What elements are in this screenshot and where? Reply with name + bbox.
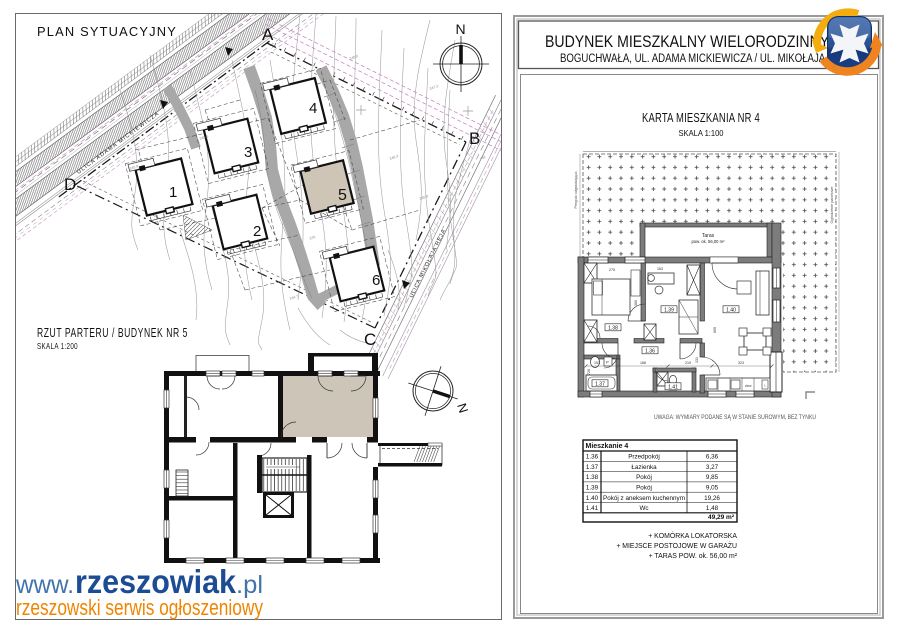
svg-text:Pokój: Pokój [636, 474, 652, 481]
svg-text:BOGUCHWAŁA, UL. ADAMA MICKIEWI: BOGUCHWAŁA, UL. ADAMA MICKIEWICZA / UL. … [560, 53, 852, 65]
svg-text:1.36: 1.36 [586, 454, 599, 461]
svg-text:Przedpokój: Przedpokój [628, 454, 660, 461]
svg-text:D: D [64, 175, 76, 194]
svg-text:1.37: 1.37 [586, 464, 599, 471]
svg-text:1.36: 1.36 [645, 349, 655, 355]
svg-text:6: 6 [372, 272, 380, 289]
svg-text:360: 360 [634, 300, 638, 306]
svg-text:+ TARAS POW. ok. 56,00 m²: + TARAS POW. ok. 56,00 m² [649, 553, 738, 560]
svg-text:ULICA MIKOŁAJA REJA: ULICA MIKOŁAJA REJA [409, 228, 448, 299]
svg-text:rzeszowski serwis ogłoszeniowy: rzeszowski serwis ogłoszeniowy [16, 595, 263, 620]
svg-text:B: B [469, 129, 480, 148]
svg-text:P: P [606, 360, 609, 365]
svg-text:726: 726 [587, 369, 591, 375]
svg-text:Mieszkanie 4: Mieszkanie 4 [586, 443, 629, 450]
svg-text:219: 219 [685, 361, 691, 365]
svg-text:N: N [456, 21, 466, 37]
svg-text:1.41: 1.41 [586, 505, 599, 512]
svg-text:1.37: 1.37 [595, 382, 605, 388]
svg-text:168: 168 [640, 361, 646, 365]
svg-text:PLAN SYTUACYJNY: PLAN SYTUACYJNY [37, 24, 177, 39]
svg-text:275: 275 [609, 268, 615, 272]
svg-text:5: 5 [338, 187, 347, 204]
svg-text:KARTA MIESZKANIA NR 4: KARTA MIESZKANIA NR 4 [642, 110, 760, 125]
svg-text:+ KOMÓRKA LOKATORSKA: + KOMÓRKA LOKATORSKA [648, 531, 737, 540]
svg-text:1,48: 1,48 [706, 505, 719, 512]
svg-text:+48: +48 [479, 155, 486, 161]
svg-text:1.40: 1.40 [726, 308, 736, 314]
svg-text:Pokój z aneksem kuchennym: Pokój z aneksem kuchennym [603, 495, 685, 502]
svg-text:1.39: 1.39 [664, 308, 674, 314]
svg-text:Wc: Wc [639, 505, 648, 512]
svg-text:153: 153 [594, 361, 600, 365]
svg-text:SKALA 1:100: SKALA 1:100 [679, 128, 724, 138]
svg-text:246.3: 246.3 [389, 154, 399, 161]
svg-text:1.41: 1.41 [668, 385, 678, 391]
svg-text:+ MIEJSCE POSTOJOWE W GARAŻU: + MIEJSCE POSTOJOWE W GARAŻU [616, 541, 737, 550]
svg-text:3,27: 3,27 [706, 464, 719, 471]
svg-text:245.8: 245.8 [419, 194, 429, 201]
svg-text:pow. ok. 56,00 m²: pow. ok. 56,00 m² [691, 239, 725, 244]
svg-text:378: 378 [309, 235, 316, 241]
svg-text:9,85: 9,85 [706, 474, 719, 481]
svg-text:SKALA 1:200: SKALA 1:200 [37, 341, 78, 351]
svg-text:UWAGA: WYMIARY PODANE SĄ W STA: UWAGA: WYMIARY PODANE SĄ W STANIE SUROWY… [654, 414, 816, 421]
svg-text:248.0: 248.0 [349, 54, 359, 61]
svg-text:323: 323 [738, 361, 744, 365]
svg-text:163: 163 [657, 267, 663, 271]
svg-text:Łazienka: Łazienka [631, 464, 657, 471]
svg-text:C: C [364, 330, 376, 349]
svg-text:1.40: 1.40 [586, 495, 599, 502]
svg-text:Pergola odgradzająca: Pergola odgradzająca [574, 171, 578, 209]
svg-text:N: N [454, 401, 471, 415]
svg-text:1.39: 1.39 [586, 484, 599, 491]
svg-text:A: A [262, 25, 274, 44]
svg-text:605: 605 [713, 327, 717, 333]
svg-text:244.7: 244.7 [289, 294, 299, 301]
svg-text:Pokój: Pokój [636, 484, 652, 491]
svg-text:131: 131 [695, 357, 699, 363]
svg-text:1: 1 [169, 184, 177, 201]
svg-text:2: 2 [253, 223, 261, 240]
svg-text:19,26: 19,26 [704, 495, 720, 502]
svg-text:4: 4 [309, 100, 317, 117]
svg-text:1.38: 1.38 [608, 326, 618, 332]
svg-text:6,36: 6,36 [706, 454, 719, 461]
svg-text:247.2: 247.2 [429, 84, 439, 91]
svg-text:1.38: 1.38 [586, 474, 599, 481]
svg-text:9,05: 9,05 [706, 484, 719, 491]
svg-text:RZUT PARTERU / BUDYNEK NR 5: RZUT PARTERU / BUDYNEK NR 5 [37, 326, 188, 340]
svg-text:49,29 m²: 49,29 m² [708, 514, 735, 521]
svg-text:3: 3 [244, 144, 252, 161]
svg-text:Ogrodzenie panelowe: Ogrodzenie panelowe [830, 187, 834, 224]
svg-text:zlew: zlew [745, 384, 752, 388]
